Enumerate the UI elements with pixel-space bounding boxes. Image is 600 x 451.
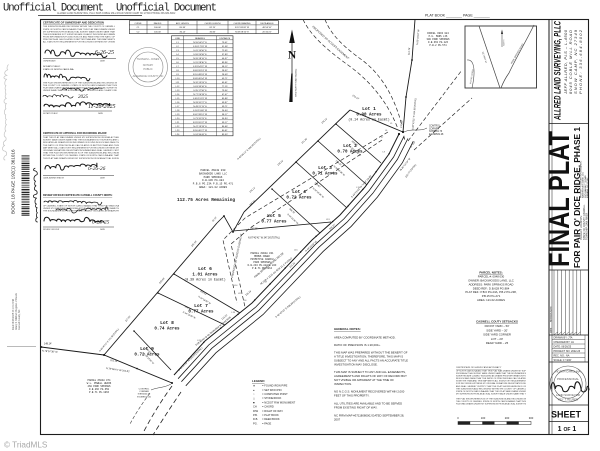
svg-text:65.61': 65.61'	[222, 82, 228, 84]
svg-text:S 73°31'23" E: S 73°31'23" E	[193, 118, 207, 120]
svg-text:0.71 Acres: 0.71 Acres	[312, 173, 338, 177]
svg-text:Lot 5: Lot 5	[267, 213, 281, 219]
svg-text:36.14': 36.14'	[180, 32, 186, 34]
svg-text:28.49': 28.49'	[222, 74, 228, 76]
svg-text:S 24°34'44" E: S 24°34'44" E	[193, 134, 207, 136]
svg-text:IN BOOK AND PAGE THAT THE RATI: IN BOOK AND PAGE THAT THE RATIO OF PRECI…	[456, 377, 527, 380]
svg-text:306.24': 306.24'	[250, 229, 258, 231]
svg-text:79.54': 79.54'	[222, 90, 228, 92]
svg-text:ALL STATUTORY REQUIREMENTS FOR: ALL STATUTORY REQUIREMENTS FOR RECORDING…	[43, 41, 116, 44]
svg-text:CASE ADMINISTRATOR: CASE ADMINISTRATOR	[43, 176, 65, 179]
svg-text:D.B.: D.B.	[253, 417, 258, 421]
svg-text:DISTANCE: DISTANCE	[219, 37, 230, 40]
svg-text:24.40': 24.40'	[222, 110, 228, 112]
svg-text:THE RATIO OF PRECISION AS CALC: THE RATIO OF PRECISION AS CALCULATED IS …	[43, 144, 120, 147]
svg-text:0.70 Acres: 0.70 Acres	[337, 151, 363, 155]
svg-text:ALLRED LAND SURVEYING, PLLC 80: ALLRED LAND SURVEYING, PLLC 8045 COBLE M…	[57, 12, 176, 15]
svg-text:© TriadMLS: © TriadMLS	[4, 441, 48, 450]
svg-text:N 23°20'37" W: N 23°20'37" W	[193, 122, 208, 124]
svg-text:THAT THIS PLAT WAS DRAWN UNDER: THAT THIS PLAT WAS DRAWN UNDER MY SUPERV…	[43, 136, 120, 139]
svg-text:PHONE: 336-684-8002: PHONE: 336-684-8002	[578, 29, 583, 94]
svg-text:AREA: 121.02 ACRES: AREA: 121.02 ACRES	[199, 186, 227, 189]
svg-text:LAND SURVEYOR: LAND SURVEYOR	[556, 393, 580, 397]
svg-text:Lot 8: Lot 8	[160, 320, 174, 326]
svg-text:BEARING: BEARING	[195, 37, 205, 40]
svg-text:72.45': 72.45'	[222, 50, 228, 52]
svg-text:CERTIFICATE OF SURVEY AND ACCU: CERTIFICATE OF SURVEY AND ACCURACY	[456, 366, 502, 369]
svg-text:ALLRED LAND SURVEYING, PLLC: ALLRED LAND SURVEYING, PLLC	[553, 21, 563, 121]
svg-text:Ginny S. Mitchell, Register of: Ginny S. Mitchell, Register of Deeds	[15, 292, 18, 330]
svg-text:38.17': 38.17'	[222, 114, 228, 116]
svg-text:37.89': 37.89'	[222, 54, 228, 56]
svg-text:CURVE: CURVE	[135, 23, 143, 25]
svg-text:FROM INFORMATION FOUND IN BOOK: FROM INFORMATION FOUND IN BOOK AND PAGE …	[43, 35, 116, 38]
svg-text:= PAGE: = PAGE	[262, 421, 272, 425]
svg-text:46.37': 46.37'	[222, 58, 228, 60]
svg-text:ORIGINAL SIGNATURE REGISTRATIO: ORIGINAL SIGNATURE REGISTRATION NUMBER A…	[43, 149, 120, 152]
svg-text:= NCDOT R/W MONUMENT: = NCDOT R/W MONUMENT	[262, 400, 296, 404]
svg-text:N 49°40'54" W: N 49°40'54" W	[193, 78, 208, 80]
svg-text:N 08°28'16" E: N 08°28'16" E	[235, 32, 249, 34]
svg-text:PLAT WAS DRAWN UNDER MY SUPERV: PLAT WAS DRAWN UNDER MY SUPERVISION FROM…	[43, 87, 117, 90]
svg-text:OWNER/DATE: OWNER/DATE	[43, 59, 56, 62]
svg-text:THE COUNTY OF CASWELL STATE OF: THE COUNTY OF CASWELL STATE OF NORTH CAR…	[43, 84, 118, 87]
svg-text:S 65°15'23" W: S 65°15'23" W	[193, 98, 208, 100]
svg-text:DATE: DATE	[100, 228, 106, 231]
svg-text:= STONE/ROCK: = STONE/ROCK	[262, 396, 282, 400]
svg-text:77.15': 77.15'	[222, 86, 228, 88]
svg-text:P.B.: P.B.	[253, 413, 258, 417]
svg-text:NOTARY PUBLIC: NOTARY PUBLIC	[43, 65, 61, 68]
svg-text:SHEET: SHEET	[551, 410, 582, 420]
svg-text:N 26°18'10" E: N 26°18'10" E	[193, 58, 207, 60]
svg-text:WITHIN THE COUNTY OF CASWELL S: WITHIN THE COUNTY OF CASWELL STATE OF NO…	[43, 154, 120, 157]
svg-text:59.97': 59.97'	[222, 102, 228, 104]
svg-text:OF CASWELL STATE OF NORTH CARO: OF CASWELL STATE OF NORTH CAROLINA AND T…	[43, 205, 120, 208]
svg-text:N 49°21'15" E: N 49°21'15" E	[193, 106, 207, 108]
svg-text:N 42°39'51" W: N 42°39'51" W	[193, 114, 208, 116]
svg-text:148.14': 148.14'	[44, 343, 52, 346]
svg-text:FEET OF THIS PROPERTY.: FEET OF THIS PROPERTY.	[334, 394, 370, 398]
svg-text:35.94': 35.94'	[210, 32, 216, 34]
svg-text:89.96': 89.96'	[222, 62, 228, 64]
svg-text:S 16°15'48" W: S 16°15'48" W	[193, 110, 208, 112]
svg-text:CHECKED BY: JA: CHECKED BY: JA	[554, 341, 575, 344]
svg-text:MEBANE, NC 27302: MEBANE, NC 27302	[586, 177, 589, 198]
svg-text:20°42'22": 20°42'22"	[262, 32, 272, 34]
svg-text:N 50°40'27" W: N 50°40'27" W	[193, 130, 208, 132]
svg-text:PLAT WAS DRAWN UNDER MY SUPERV: PLAT WAS DRAWN UNDER MY SUPERVISION FROM…	[456, 403, 526, 406]
svg-text:FOR RECORDING WITNESS MY ORIGI: FOR RECORDING WITNESS MY ORIGINAL SIGNAT…	[456, 382, 527, 385]
svg-text:REVIEW OFFICER: REVIEW OFFICER	[43, 229, 60, 231]
svg-text:0.77 Acres: 0.77 Acres	[261, 221, 287, 225]
svg-text:Caswell County, NC: Caswell County, NC	[18, 309, 21, 330]
svg-text:79.41': 79.41'	[222, 42, 228, 44]
svg-text:N 32°13'26" E: N 32°13'26" E	[193, 82, 207, 84]
svg-text:GRID NORTH NAD 83(2011): GRID NORTH NAD 83(2011)	[294, 68, 297, 97]
svg-text:CHORD BEARING: CHORD BEARING	[234, 22, 251, 25]
svg-text:THAT THE PLAT SHOWN HEREON IS: THAT THE PLAT SHOWN HEREON IS OF THE SUB…	[43, 152, 120, 155]
svg-text:0.74 Acres: 0.74 Acres	[154, 328, 180, 332]
svg-text:DRAWN BY: JTA: DRAWN BY: JTA	[554, 336, 573, 339]
svg-text:N 10°48'53" W: N 10°48'53" W	[193, 74, 208, 76]
svg-text:S 31°28'30" E: S 31°28'30" E	[193, 62, 207, 64]
svg-text:300: 300	[529, 416, 534, 420]
svg-text:PG.: PG.	[253, 421, 258, 425]
svg-text:STATE OF NORTH CAROLINA: STATE OF NORTH CAROLINA	[43, 68, 74, 71]
svg-text:86.68': 86.68'	[222, 126, 228, 128]
svg-text:DATE: DATE	[550, 327, 553, 333]
svg-text:PROJECT NO: 2022-23: PROJECT NO: 2022-23	[554, 350, 581, 353]
svg-text:REY T. ALLRED: REY T. ALLRED	[558, 398, 578, 402]
svg-text:DATE: 06/26/25: DATE: 06/26/25	[554, 345, 572, 348]
svg-text:INSPECTION.: INSPECTION.	[334, 382, 352, 386]
svg-text:INVESTIGATION MAY DISCLOSE.: INVESTIGATION MAY DISCLOSE.	[334, 363, 378, 367]
svg-text:REAR YARD – 25: REAR YARD – 25	[486, 341, 509, 345]
svg-text:= COMPUTED POINT: = COMPUTED POINT	[262, 392, 288, 396]
svg-text:82.76': 82.76'	[210, 27, 216, 29]
svg-text:= FOUND IRON PIPE: = FOUND IRON PIPE	[262, 384, 288, 388]
svg-text:INDICATED AS DRAWN FROM INFORM: INDICATED AS DRAWN FROM INFORMATION FOUN…	[43, 141, 120, 144]
svg-text:NOTARY: NOTARY	[143, 63, 154, 67]
svg-text:= RIGHT OF WAY: = RIGHT OF WAY	[262, 409, 283, 413]
svg-text:CERTIFICATE OF APPROVAL FOR RE: CERTIFICATE OF APPROVAL FOR RECORDING MA…	[43, 132, 107, 135]
svg-text:CORNER: CORNER	[429, 128, 439, 130]
svg-text:N 47°19'39" E: N 47°19'39" E	[193, 126, 207, 128]
svg-text:AREA COMPUTED BY COORDINATE ME: AREA COMPUTED BY COORDINATE METHOD.	[334, 336, 396, 340]
svg-text:Lot 6: Lot 6	[198, 266, 212, 272]
svg-text:NORTH: NORTH	[504, 39, 506, 46]
svg-text:200: 200	[505, 416, 510, 420]
svg-text:100: 100	[481, 416, 486, 420]
svg-text:2025: 2025	[78, 95, 89, 100]
svg-text:(0.14 Acres in Easmt): (0.14 Acres in Easmt)	[348, 117, 390, 121]
svg-text:REC. NO.: NA: REC. NO.: NA	[554, 354, 570, 357]
svg-text:S 30°17'33" W: S 30°17'33" W	[193, 46, 208, 48]
svg-text:100.00': 100.00'	[154, 32, 162, 34]
svg-text:DATE: DATE	[100, 176, 106, 179]
svg-text:NOTARY PUBLIC: NOTARY PUBLIC	[43, 112, 59, 115]
svg-text:112.75 Acres Remaining: 112.75 Acres Remaining	[177, 198, 235, 203]
svg-text:AREA: 121.02 ACRES: AREA: 121.02 ACRES	[477, 298, 505, 302]
svg-text:N 55°54'57" E: N 55°54'57" E	[193, 42, 207, 44]
svg-text:PROFESSIONAL: PROFESSIONAL	[557, 377, 579, 381]
svg-text:CASWELL COUTY SETBACKS: CASWELL COUTY SETBACKS	[476, 320, 518, 324]
svg-text:= PLAT BOOK: = PLAT BOOK	[262, 413, 279, 417]
svg-text:0.77 Acres: 0.77 Acres	[188, 311, 214, 315]
svg-text:SCALE: 1"=200': SCALE: 1"=200'	[554, 359, 572, 362]
svg-text:NORTH CAROLINA: NORTH CAROLINA	[556, 370, 581, 374]
svg-text:TOWNSHIP: DAN RIVER: TOWNSHIP: DAN RIVER	[585, 213, 588, 240]
svg-text:6-25-25: 6-25-25	[92, 220, 110, 226]
svg-text:THE PLAT SHOWN HEREON IS OF TH: THE PLAT SHOWN HEREON IS OF THE SUBDIVIS…	[456, 398, 526, 401]
svg-text:58.12': 58.12'	[222, 66, 228, 68]
svg-text:0.72 Acres: 0.72 Acres	[286, 197, 312, 201]
svg-text:SURVEY MADE UNDER SAME THAT TH: SURVEY MADE UNDER SAME THAT THE BOUNDARI…	[43, 139, 120, 142]
svg-text:E:1889537.06: E:1889537.06	[137, 396, 151, 398]
svg-text:GENERAL NOTES:: GENERAL NOTES:	[334, 327, 361, 331]
svg-text:S 41°10'56" E: S 41°10'56" E	[193, 50, 207, 52]
svg-text:= DEED BOOK: = DEED BOOK	[262, 417, 280, 421]
svg-text:REVISION NOTE: REVISION NOTE	[551, 306, 553, 322]
svg-text:85.38': 85.38'	[180, 27, 186, 29]
svg-text:NC FIRM MAP #3711808000J DATED: NC FIRM MAP #3711808000J DATED SEPTEMBER…	[334, 414, 404, 418]
svg-text:Lot 7: Lot 7	[194, 303, 208, 309]
svg-text:Filed 06/26/2025 03:13:13 PM: Filed 06/26/2025 03:13:13 PM	[13, 299, 15, 330]
svg-text:DATE: DATE	[100, 59, 106, 62]
svg-text:39.17': 39.17'	[222, 122, 228, 124]
svg-text:PLAT BOOK ________ PAGE _____: PLAT BOOK ________ PAGE ________	[425, 14, 491, 18]
svg-text:BOOK 18 PAGE 192(1) 361016: BOOK 18 PAGE 192(1) 361016	[11, 149, 16, 214]
svg-text:REVIEW OFFICER CERTIFICATE CAS: REVIEW OFFICER CERTIFICATE CASWELL COUNT…	[43, 194, 112, 197]
svg-text:Lot 4: Lot 4	[292, 189, 306, 195]
svg-text:Lot 1: Lot 1	[362, 106, 376, 112]
svg-text:Lot 2: Lot 2	[343, 143, 357, 149]
svg-text:P.B.71 PG.1066: P.B.71 PG.1066	[89, 391, 110, 394]
svg-text:LINE: LINE	[175, 38, 180, 40]
svg-text:CH: CH	[253, 405, 257, 409]
svg-text:THOMAS L JONES: THOMAS L JONES	[137, 57, 160, 61]
svg-text:= SET IRON PIN: = SET IRON PIN	[262, 388, 282, 392]
svg-text:11-28-2025: 11-28-2025	[88, 104, 116, 110]
svg-text:59.71': 59.71'	[222, 106, 228, 108]
svg-text:THE SUBDIVISION AND RECORDING: THE SUBDIVISION AND RECORDING WITHIN THE…	[43, 25, 116, 28]
svg-text:DELTA ANGLE: DELTA ANGLE	[260, 22, 274, 25]
svg-text:N 87°42'41" W 347.36'(TOTAL): N 87°42'41" W 347.36'(TOTAL)	[248, 237, 280, 240]
svg-text:OF NORTH CAROLINA AND THAT THI: OF NORTH CAROLINA AND THAT THIS PLAT WAS…	[456, 370, 527, 373]
svg-text:P.B.2 PG.574: P.B.2 PG.574	[429, 44, 447, 47]
svg-text:(0.39 Acres in Easmt): (0.39 Acres in Easmt)	[184, 277, 226, 281]
svg-text:S 59°20'58" E: S 59°20'58" E	[193, 54, 207, 56]
svg-text:S 35°17'58" E: S 35°17'58" E	[193, 90, 207, 92]
svg-text:100.00': 100.00'	[154, 27, 162, 29]
svg-text:51.58': 51.58'	[222, 46, 228, 48]
svg-text:RATIO OF PRECISION IS 1:20,000: RATIO OF PRECISION IS 1:20,000+.	[334, 343, 381, 347]
svg-text:1 OF 1: 1 OF 1	[558, 426, 577, 433]
svg-text:ARC LENGTH: ARC LENGTH	[176, 22, 189, 25]
svg-text:P.B.71 PG.1264: P.B.71 PG.1264	[252, 267, 273, 270]
svg-text:MAP MEETS ALL STATUTORY REQUIR: MAP MEETS ALL STATUTORY REQUIREMENTS FOR…	[43, 146, 120, 149]
svg-text:ALAMANCE COUNTY, NC: ALAMANCE COUNTY, NC	[133, 74, 164, 78]
svg-text:N 28°31'27" E: N 28°31'27" E	[193, 102, 207, 104]
svg-text:36.90': 36.90'	[222, 118, 228, 120]
svg-text:LEGEND: LEGEND	[252, 379, 265, 383]
svg-text:AND SEAL I HEREBY CERTIFY THAT: AND SEAL I HEREBY CERTIFY THAT THE PLAT …	[456, 385, 527, 388]
svg-text:RADIUS: RADIUS	[154, 22, 162, 25]
svg-text:43.71': 43.71'	[222, 78, 228, 80]
svg-text:N 12°09'09" W: N 12°09'09" W	[235, 27, 250, 29]
svg-text:MY SUPERVISION FROM AN ACTUAL: MY SUPERVISION FROM AN ACTUAL SURVEY MAD…	[456, 392, 527, 395]
svg-text:CERTIFICATE OF OWNERSHIP AND D: CERTIFICATE OF OWNERSHIP AND DEDICATION	[43, 21, 104, 25]
svg-text:R/W: R/W	[253, 409, 259, 413]
svg-text:= CHORD: = CHORD	[262, 405, 274, 409]
svg-text:0.72 Acres: 0.72 Acres	[134, 354, 160, 358]
svg-text:S 33°54'22" W: S 33°54'22" W	[193, 66, 208, 68]
svg-text:FROM EXISTING RIGHT OF WAY.: FROM EXISTING RIGHT OF WAY.	[334, 406, 378, 410]
svg-text:N:856051.73: N:856051.73	[429, 131, 443, 133]
svg-text:FINAL PLAT: FINAL PLAT	[544, 131, 576, 267]
svg-text:PUBLIC: PUBLIC	[143, 67, 152, 71]
svg-text:S 63°33'34" E: S 63°33'34" E	[193, 86, 207, 88]
svg-text:2007: 2007	[334, 418, 341, 422]
svg-text:CHORD LENGTH: CHORD LENGTH	[204, 23, 221, 25]
svg-text:MY SUPERVISION FROM AN ACTUAL: MY SUPERVISION FROM AN ACTUAL SURVEY MAD…	[43, 30, 116, 33]
svg-text:N: N	[288, 50, 297, 62]
svg-text:Lot 9: Lot 9	[140, 346, 154, 352]
svg-text:6-26-26: 6-26-26	[88, 166, 106, 172]
svg-text:6-26-25: 6-26-25	[95, 50, 114, 56]
svg-text:THIS PLAT WAS DRAWN UNDER MY S: THIS PLAT WAS DRAWN UNDER MY SUPERVISION…	[43, 157, 120, 160]
svg-text:DATE: DATE	[98, 112, 104, 115]
svg-text:80.61': 80.61'	[222, 130, 228, 132]
svg-text:48°55'10": 48°55'10"	[262, 27, 272, 29]
svg-text:N 63°20'19" W: N 63°20'19" W	[193, 70, 208, 72]
svg-text:83.53': 83.53'	[222, 134, 228, 136]
svg-text:67.47': 67.47'	[222, 94, 228, 96]
svg-text:28.52': 28.52'	[222, 70, 228, 72]
svg-text:N 77°26'39" E: N 77°26'39" E	[193, 94, 207, 96]
svg-text:85.88': 85.88'	[222, 98, 228, 100]
